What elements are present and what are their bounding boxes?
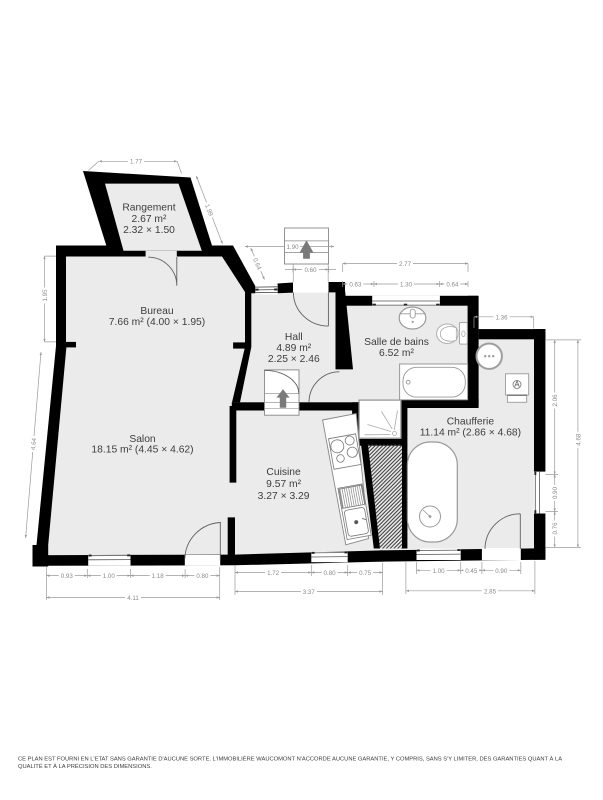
svg-text:0.60: 0.60 — [304, 267, 317, 274]
svg-text:1.90: 1.90 — [286, 244, 299, 251]
svg-text:9.57 m²: 9.57 m² — [266, 479, 301, 490]
svg-text:4.68: 4.68 — [575, 433, 582, 446]
svg-text:4.89 m²: 4.89 m² — [276, 343, 311, 354]
svg-text:3.27 × 3.29: 3.27 × 3.29 — [258, 491, 310, 502]
svg-text:18.15 m² (4.45 × 4.62): 18.15 m² (4.45 × 4.62) — [91, 445, 193, 456]
svg-text:0.90: 0.90 — [552, 486, 559, 499]
svg-text:0.76: 0.76 — [552, 522, 559, 535]
svg-text:Chaufferie: Chaufferie — [447, 417, 495, 428]
svg-text:1.18: 1.18 — [152, 573, 165, 580]
svg-text:1.72: 1.72 — [267, 570, 280, 577]
svg-text:0.80: 0.80 — [196, 573, 209, 580]
svg-text:Bureau: Bureau — [140, 306, 173, 317]
svg-text:1.36: 1.36 — [495, 314, 508, 321]
svg-text:Hall: Hall — [285, 332, 303, 343]
svg-text:0.75: 0.75 — [359, 570, 372, 577]
svg-text:CE PLAN EST FOURNI EN L'ETAT S: CE PLAN EST FOURNI EN L'ETAT SANS GARANT… — [18, 756, 562, 763]
svg-text:2.06: 2.06 — [552, 394, 559, 407]
svg-text:0.80: 0.80 — [323, 570, 336, 577]
svg-text:0.93: 0.93 — [61, 573, 74, 580]
svg-text:Salon: Salon — [129, 434, 156, 445]
svg-text:4.11: 4.11 — [127, 595, 139, 602]
svg-text:4.64: 4.64 — [30, 437, 38, 450]
svg-text:1.00: 1.00 — [433, 568, 446, 575]
svg-text:Salle de bains: Salle de bains — [364, 337, 429, 348]
svg-text:0.64: 0.64 — [446, 282, 459, 289]
svg-text:2.25 × 2.46: 2.25 × 2.46 — [268, 354, 320, 365]
svg-text:Cuisine: Cuisine — [266, 467, 301, 478]
svg-text:2.32 × 1.50: 2.32 × 1.50 — [123, 225, 175, 236]
svg-text:QUALITÉ ET À LA PRÉCISION DES: QUALITÉ ET À LA PRÉCISION DES DIMENSIONS… — [18, 763, 152, 770]
svg-text:1.00: 1.00 — [103, 573, 116, 580]
svg-text:0.63: 0.63 — [349, 282, 362, 289]
svg-text:Rangement: Rangement — [122, 203, 175, 214]
svg-text:1.30: 1.30 — [400, 282, 413, 289]
svg-text:2.67 m²: 2.67 m² — [132, 214, 167, 225]
svg-text:3.37: 3.37 — [303, 589, 316, 596]
svg-text:7.66 m² (4.00 × 1.95): 7.66 m² (4.00 × 1.95) — [109, 317, 205, 328]
svg-text:2.77: 2.77 — [399, 261, 412, 268]
svg-text:6.52 m²: 6.52 m² — [379, 348, 414, 359]
svg-text:0.45: 0.45 — [465, 568, 478, 575]
svg-text:1.95: 1.95 — [42, 289, 49, 302]
svg-text:0.90: 0.90 — [495, 568, 508, 575]
svg-text:2.85: 2.85 — [484, 588, 497, 595]
svg-text:11.14 m² (2.86 × 4.68): 11.14 m² (2.86 × 4.68) — [420, 428, 521, 439]
svg-text:1.77: 1.77 — [130, 159, 143, 166]
